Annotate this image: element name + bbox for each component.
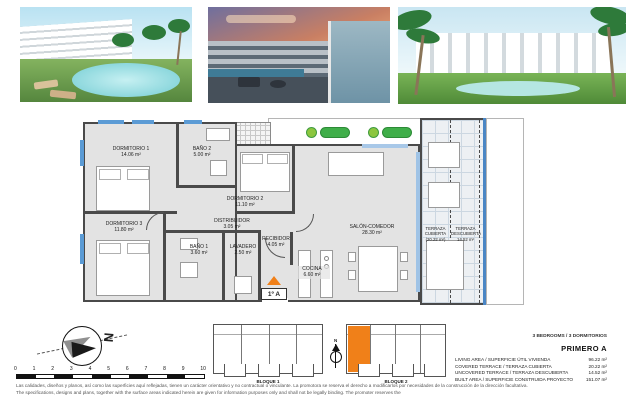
toilet — [210, 160, 227, 176]
dining-table — [358, 246, 398, 292]
keyplan-compass-letter: N — [334, 338, 337, 343]
window — [80, 140, 84, 166]
keyplan-terrace-u — [392, 364, 414, 377]
palm-tree — [142, 25, 166, 40]
plant-badge — [320, 127, 350, 138]
plant-badge — [382, 127, 412, 138]
sliding-glass-door — [416, 152, 420, 292]
pillow — [127, 243, 149, 254]
room-label-salon: SALÓN-COMEDOR28.30 m² — [342, 224, 402, 237]
toilet — [180, 262, 198, 278]
summary-row: LIVING AREA / SUPERFICIE ÚTIL VIVIENDA96… — [455, 357, 607, 364]
summary-row: COVERED TERRACE / TERRAZA CUBIERTA20.22 … — [455, 364, 607, 371]
planter-icon — [368, 127, 379, 138]
keyplan-terrace-u — [258, 364, 280, 377]
building — [416, 33, 610, 73]
chair — [400, 252, 408, 262]
room-label-distribuidor: DISTRIBUIDOR3.05 m² — [204, 218, 260, 231]
disclaimer: Las calidades, diseños y planos, así com… — [16, 383, 608, 397]
wall — [292, 146, 295, 214]
brochure-page: 1º A DORMITORIO 114.06 m² BAÑO 25.00 m² … — [0, 0, 630, 401]
compass-needle-black — [71, 340, 96, 358]
photo-terrace-dusk — [208, 7, 390, 103]
outer-walkway — [486, 118, 524, 305]
pool — [72, 63, 180, 97]
palm-tree — [112, 33, 134, 47]
room-label-dormitorio1: DORMITORIO 114.06 m² — [101, 146, 161, 159]
pillow — [267, 154, 288, 164]
chair — [400, 270, 408, 280]
scale-numbers: 012345678910 — [14, 366, 206, 372]
terrace-lounger — [428, 142, 460, 168]
disclaimer-en: The specifications, designs and plans, t… — [16, 390, 608, 396]
room-label-bano1: BAÑO 13.60 m² — [179, 244, 219, 257]
sink — [206, 128, 230, 141]
glass-wall — [328, 21, 390, 103]
window — [362, 144, 408, 148]
terrace-lounger — [428, 182, 460, 208]
window — [80, 234, 84, 264]
keyplan-terrace-u — [292, 364, 314, 377]
washing-machine — [234, 276, 252, 294]
scale-bar-segments — [16, 374, 205, 379]
sofa — [328, 152, 384, 176]
keyplan-compass-arrow-icon — [332, 344, 340, 351]
furniture-silhouette — [270, 80, 286, 88]
room-label-terraza-descubierta: TERRAZA DESCUBIERTA14.52 m² — [451, 226, 480, 242]
wall — [237, 211, 295, 214]
unit-name: PRIMERO A — [375, 344, 607, 353]
entrance-arrow-icon — [267, 276, 281, 285]
unit-door-text: 1º A — [268, 291, 280, 298]
room-label-recibidor: RECIBIDOR4.05 m² — [258, 236, 294, 249]
room-label-bano2: BAÑO 25.00 m² — [180, 146, 224, 159]
stove-burner — [324, 256, 329, 261]
room-label-dormitorio2: DORMITORIO 211.10 m² — [215, 196, 275, 209]
bedroom-count-line: 3 BEDROOMS / 3 DORMITORIOS — [375, 334, 607, 339]
photo-pool-day — [20, 7, 192, 102]
wall — [176, 185, 237, 188]
furniture-silhouette — [238, 77, 260, 87]
room-label-cocina: COCINA6.60 m² — [294, 266, 330, 279]
pillow — [127, 169, 149, 180]
summary-row: UNCOVERED TERRACE / TERRAZA DESCUBIERTA1… — [455, 370, 607, 377]
keyplan-terrace-u — [224, 364, 246, 377]
terrace-table — [426, 240, 464, 290]
disclaimer-es: Las calidades, diseños y planos, así com… — [16, 383, 608, 389]
chair — [348, 270, 356, 280]
keyplan-compass-circle — [330, 351, 342, 363]
cloud — [226, 15, 296, 23]
pillow — [242, 154, 263, 164]
keyplan-compass-line — [335, 344, 336, 368]
pool — [456, 81, 580, 96]
room-label-dormitorio3: DORMITORIO 311.80 m² — [95, 221, 153, 234]
pillow — [99, 243, 121, 254]
window — [132, 120, 154, 124]
chair — [348, 252, 356, 262]
compass-north-letter: N — [101, 332, 117, 343]
window — [98, 120, 124, 124]
room-label-lavadero: LAVADERO2.50 m² — [226, 244, 260, 257]
room-label-terraza-cubierta: TERRAZA CUBIERTA(20.22 m²) — [421, 226, 450, 242]
wall — [222, 232, 225, 300]
keyplan-terrace-u — [358, 364, 380, 377]
wall — [176, 124, 179, 188]
pillow — [99, 169, 121, 180]
area-summary-rows: LIVING AREA / SUPERFICIE ÚTIL VIVIENDA96… — [455, 357, 607, 384]
planter-icon — [306, 127, 317, 138]
photo-building-garden — [398, 7, 626, 104]
unit-door-label: 1º A — [261, 288, 287, 300]
keyplan-terrace-u — [424, 364, 446, 377]
window — [184, 120, 202, 124]
terrace-divider-dashed — [479, 120, 480, 303]
